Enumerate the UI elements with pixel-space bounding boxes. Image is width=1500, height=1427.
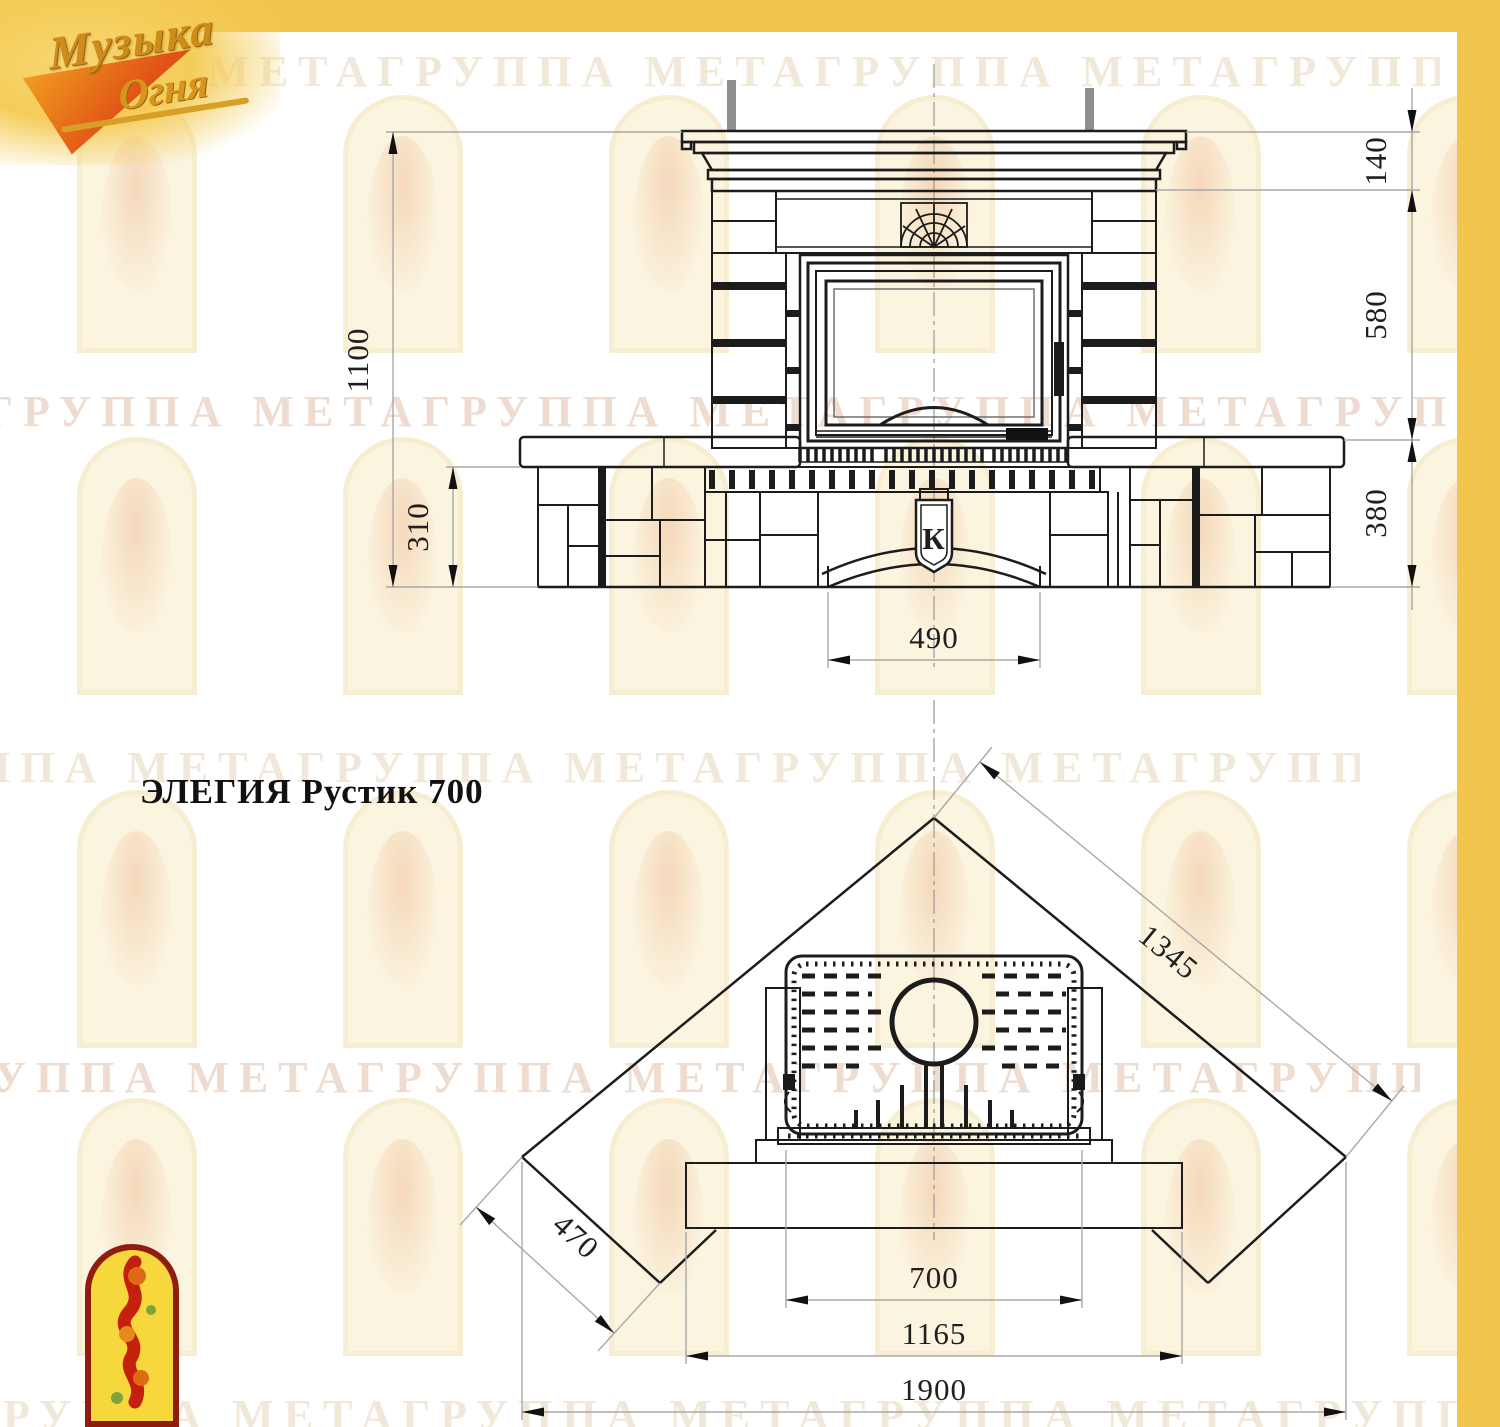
picket-band bbox=[705, 467, 1100, 492]
masonry-right bbox=[1130, 467, 1330, 587]
arch-emblem bbox=[85, 1244, 179, 1427]
front-view: К bbox=[520, 64, 1344, 672]
dimension-arrows bbox=[389, 110, 1417, 665]
drawing-title: ЭЛЕГИЯ Рустик 700 bbox=[140, 772, 484, 812]
plan-view bbox=[522, 700, 1346, 1283]
dim-plinth-height: 310 bbox=[400, 502, 435, 552]
chimney-pipe-left bbox=[727, 80, 736, 132]
dim-corner-depth: 470 bbox=[546, 1207, 606, 1266]
ash-lip bbox=[1006, 428, 1048, 440]
dim-base-height: 380 bbox=[1358, 488, 1393, 538]
emblem-letter: К bbox=[922, 521, 945, 556]
pillar-right bbox=[1068, 253, 1156, 448]
technical-drawing-svg: К bbox=[0, 0, 1500, 1427]
emblem-plaque: К bbox=[916, 489, 952, 572]
dim-back-diagonal: 1345 bbox=[1132, 917, 1205, 986]
chimney-pipe-right bbox=[1085, 88, 1094, 132]
dim-body-height: 580 bbox=[1358, 290, 1393, 340]
dim-opening-width: 490 bbox=[909, 620, 959, 655]
dim-hearth-width: 1165 bbox=[902, 1316, 967, 1351]
dim-overall-width: 1900 bbox=[901, 1372, 967, 1407]
base-plinth: К bbox=[538, 467, 1330, 587]
drawing-sheet: ГРУППА МЕТАГРУППА МЕТАГРУППА МЕТАГРУППА … bbox=[0, 0, 1500, 1427]
masonry-left bbox=[538, 467, 705, 587]
flame-figure-icon bbox=[91, 1250, 173, 1421]
dim-firebox-width: 700 bbox=[909, 1260, 959, 1295]
dim-total-height: 1100 bbox=[340, 328, 375, 393]
vent-grille bbox=[800, 448, 1066, 462]
fan-ornament-icon bbox=[901, 203, 967, 247]
plan-view-dimensions: 700 1165 1900 1345 470 bbox=[460, 747, 1404, 1420]
front-view-dimensions: 1100 310 140 580 380 490 bbox=[340, 88, 1420, 668]
pillar-left bbox=[712, 253, 800, 448]
brand-logo: Музыка Огня bbox=[0, 0, 280, 165]
dim-crown-height: 140 bbox=[1358, 136, 1393, 186]
door-handle bbox=[1054, 342, 1064, 396]
